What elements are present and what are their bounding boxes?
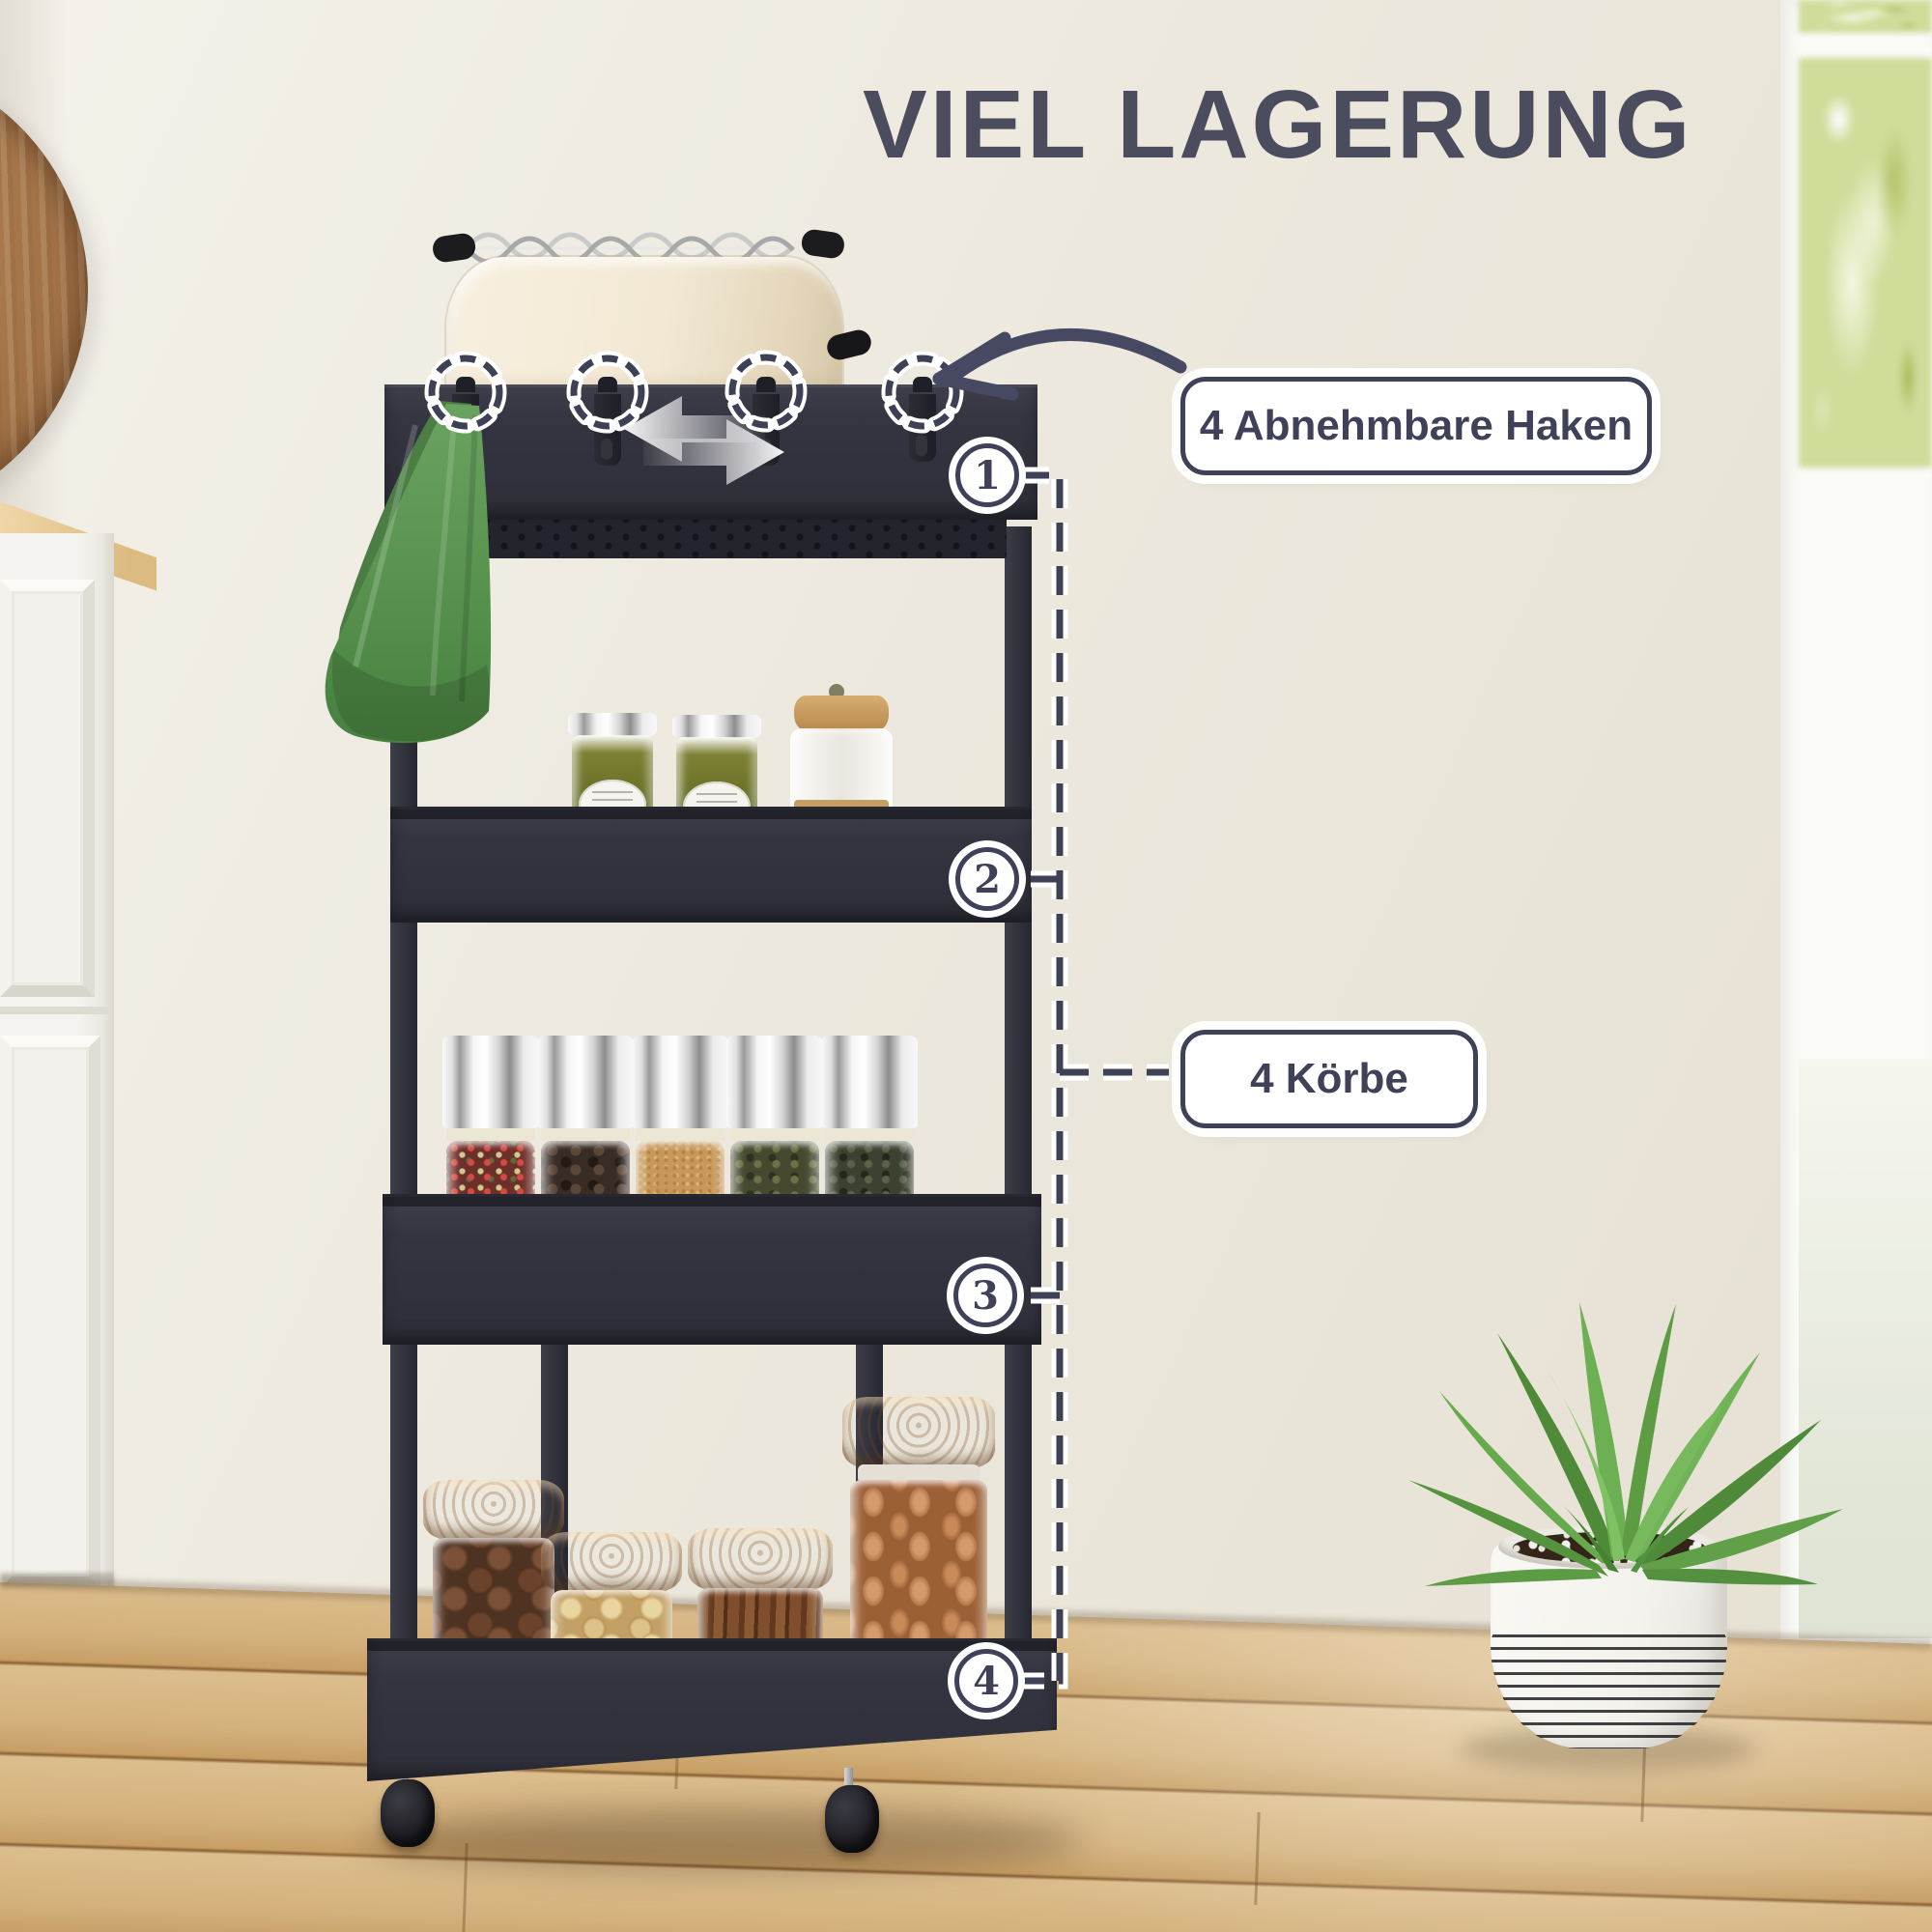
callout-baskets-label: 4 Körbe xyxy=(1250,1055,1408,1103)
curved-arrow-icon xyxy=(939,334,1180,394)
marker-1-number: 1 xyxy=(974,453,1001,498)
marker-2: 2 xyxy=(955,847,1019,911)
marker-3: 3 xyxy=(953,1264,1017,1327)
callout-baskets: 4 Körbe xyxy=(1180,1030,1478,1128)
leader-line xyxy=(1020,475,1169,1681)
page-title: VIEL LAGERUNG xyxy=(863,70,1692,181)
slide-arrows-icon xyxy=(624,396,784,485)
leader-line-casing xyxy=(1020,475,1169,1681)
green-towel xyxy=(326,401,491,743)
callout-hooks: 4 Abnehmbare Haken xyxy=(1180,377,1652,475)
marker-3-number: 3 xyxy=(972,1273,999,1319)
marker-4: 4 xyxy=(954,1649,1018,1713)
annotation-overlay xyxy=(0,0,1932,1932)
marker-1: 1 xyxy=(955,443,1019,507)
product-scene: 1 2 3 4 VIEL LAGERUNG 4 Abnehmbare Haken… xyxy=(0,0,1932,1932)
marker-2-number: 2 xyxy=(974,857,1001,902)
marker-4-number: 4 xyxy=(973,1659,1000,1704)
callout-hooks-label: 4 Abnehmbare Haken xyxy=(1200,402,1633,450)
